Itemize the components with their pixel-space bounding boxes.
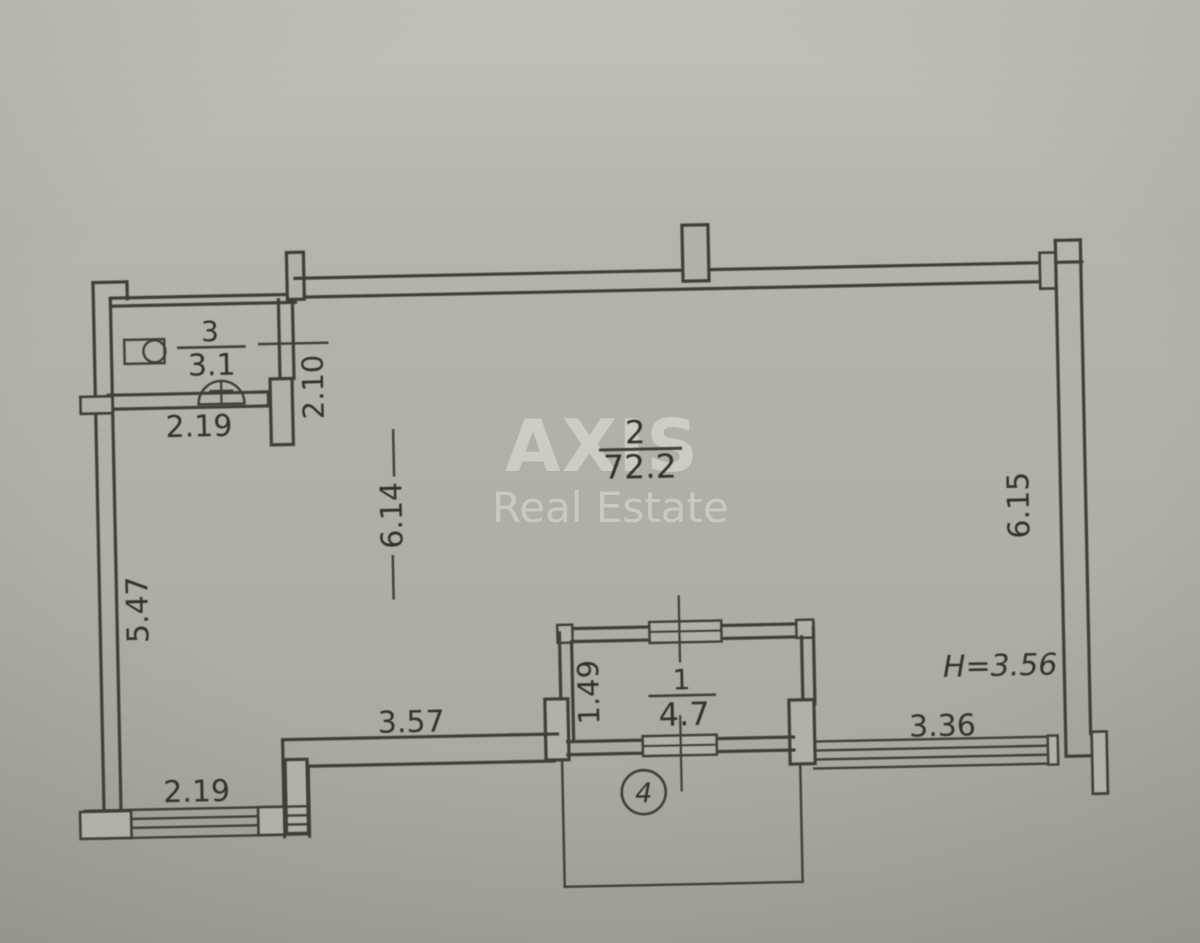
dim-tick-hall — [259, 343, 327, 344]
room1-number: 1 — [672, 663, 691, 696]
wall-left-inner — [110, 299, 121, 810]
dim-line-6-14-upper — [393, 430, 394, 475]
balcony-corner-right — [796, 620, 813, 638]
room1-area: 4.7 — [658, 695, 710, 734]
dim-bottom-left: 3.57 — [377, 704, 445, 740]
sink-basin — [143, 340, 165, 362]
wall-right-foot — [1092, 731, 1108, 793]
dim-bathroom-width: 2.19 — [165, 409, 233, 445]
dim-hall-length: 2.10 — [296, 354, 331, 419]
dim-facade-left: 2.19 — [163, 774, 231, 810]
dim-right-wall: 6.15 — [1001, 471, 1037, 539]
dim-room-width: 6.14 — [374, 482, 410, 550]
wall-right-cap — [1055, 240, 1080, 241]
balcony-pillar-left — [545, 699, 569, 760]
balcony-right-outer — [813, 628, 815, 704]
dim-bottom-right: 3.36 — [909, 708, 977, 744]
wall-top-inner — [304, 281, 1054, 297]
wall-left-outer — [93, 283, 104, 813]
wall-stub-left — [80, 396, 112, 414]
dim-left-wall: 5.47 — [120, 576, 156, 644]
wall-left-top-cap — [93, 282, 127, 283]
dim-balcony-depth: 1.49 — [571, 660, 606, 725]
zone4-number: 4 — [635, 778, 653, 809]
door-leaf-bathroom — [270, 378, 293, 444]
window-band-right-4 — [814, 764, 1052, 769]
window-band-right-cap — [258, 807, 285, 836]
window-band-right-2 — [814, 746, 1052, 751]
entrance-stub — [286, 252, 304, 299]
balcony-pillar-right — [789, 700, 815, 765]
wall-bathroom-right-inner — [292, 299, 294, 378]
window-band-left-cap — [80, 811, 132, 839]
dim-ceiling-height: H=3.56 — [943, 647, 1058, 684]
vent-shaft — [682, 225, 709, 282]
wall-bathroom-top-outer — [110, 294, 295, 298]
dim-line-6-14-lower — [393, 556, 394, 598]
wall-bathroom-bottom-outer — [108, 392, 268, 395]
wall-bottom-lower — [283, 761, 554, 767]
window-band-right-post — [1048, 735, 1059, 764]
wall-bathroom-top-inner — [110, 302, 295, 306]
room3-area: 3.1 — [188, 348, 236, 384]
leader-balcony-upper — [679, 596, 680, 661]
floor-plan-scan: AXIS Real Estate — [0, 0, 1200, 943]
wall-right-bottom-joint — [1066, 756, 1092, 757]
window-band-right-3 — [814, 755, 1052, 760]
wall-step-pillar — [285, 759, 309, 833]
wall-bathroom-right-outer — [278, 300, 280, 379]
corner-pilaster — [1040, 252, 1057, 288]
floor-plan-drawing: 3 3.1 2 72.2 1 4.7 4 2.19 2.19 3.57 3.36… — [0, 0, 1200, 943]
room3-number: 3 — [201, 315, 220, 348]
room2-number: 2 — [625, 413, 646, 451]
balcony-right-inner — [802, 637, 803, 704]
room2-area: 72.2 — [603, 446, 677, 487]
wall-right-outer — [1080, 240, 1090, 734]
